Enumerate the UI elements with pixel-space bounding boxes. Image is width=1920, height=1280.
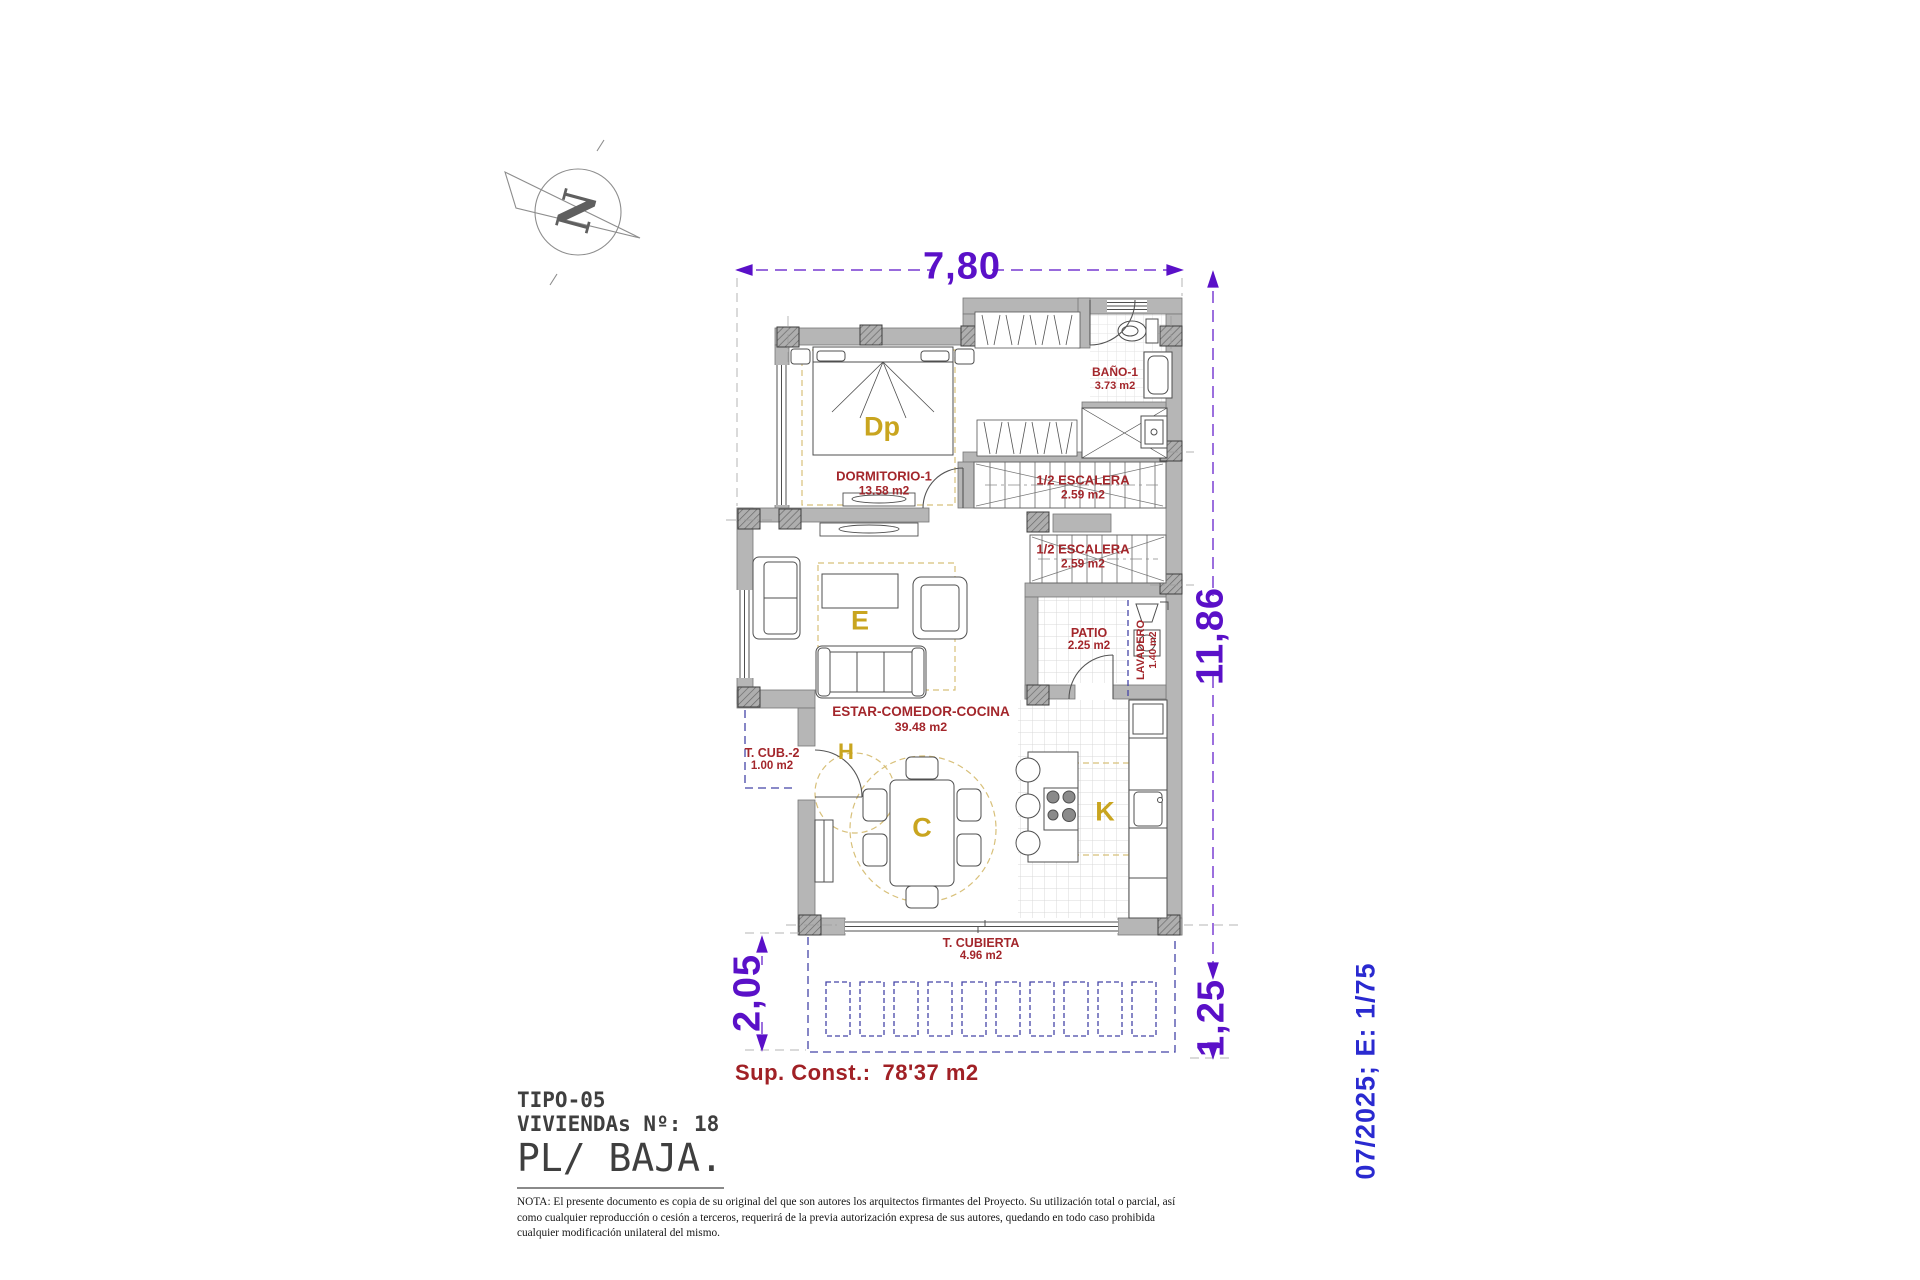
title-floor: PL/ BAJA.: [517, 1136, 723, 1180]
room-name: ESTAR-COMEDOR-COCINA: [832, 704, 1010, 720]
room-area: 2.59 m2: [1036, 489, 1129, 503]
dimension-porch-left: 2,05: [727, 954, 770, 1032]
room-label-banyo1: BAÑO-1 3.73 m2: [1092, 366, 1138, 393]
room-area: 4.96 m2: [943, 951, 1020, 964]
room-name: DORMITORIO-1: [836, 470, 932, 485]
date-scale-note: 07/2025; E: 1/75: [1351, 962, 1382, 1179]
summary-label: Sup. Const.:: [735, 1060, 871, 1085]
title-dwellings: VIVIENDAs Nº: 18: [517, 1112, 719, 1136]
legal-note-line: cualquier modificación unilateral del mi…: [517, 1226, 1175, 1242]
room-area: 1.40 m2: [1148, 620, 1160, 680]
zone-letter-dp: Dp: [864, 412, 900, 443]
zone-letter-k: K: [1095, 797, 1115, 828]
room-name: T. CUBIERTA: [943, 936, 1020, 950]
room-name: T. CUB.-2: [745, 746, 800, 760]
zone-letter-c: C: [912, 813, 932, 844]
room-name: 1/2 ESCALERA: [1036, 543, 1129, 558]
room-area: 13.58 m2: [836, 485, 932, 499]
room-label-lavadero: LAVADERO 1.40 m2: [1135, 620, 1159, 680]
floorplan-sheet: N 7,80 11,86 2,05 1,25 BAÑO-1 3.73 m2 DO…: [0, 0, 1920, 1280]
room-label-patio: PATIO 2.25 m2: [1068, 626, 1110, 654]
built-area-summary: Sup. Const.:78'37 m2: [735, 1060, 979, 1086]
floor-plan-drawing: [0, 0, 1920, 1280]
dimension-top-width: 7,80: [923, 246, 1001, 289]
room-label-dormitorio1: DORMITORIO-1 13.58 m2: [836, 470, 932, 499]
room-label-tcub2: T. CUB.-2 1.00 m2: [745, 746, 800, 774]
room-name: BAÑO-1: [1092, 366, 1138, 380]
room-area: 2.59 m2: [1036, 558, 1129, 572]
room-area: 3.73 m2: [1092, 380, 1138, 393]
legal-note: NOTA: El presente documento es copia de …: [517, 1195, 1175, 1242]
room-name: PATIO: [1068, 626, 1110, 640]
room-area: 39.48 m2: [832, 720, 1010, 734]
room-name: 1/2 ESCALERA: [1036, 474, 1129, 489]
title-divider: [517, 1187, 724, 1189]
room-area: 1.00 m2: [745, 761, 800, 774]
zone-letter-e: E: [851, 606, 869, 637]
room-label-estar: ESTAR-COMEDOR-COCINA 39.48 m2: [832, 704, 1010, 734]
room-label-tcubierta: T. CUBIERTA 4.96 m2: [943, 936, 1020, 964]
zone-letter-h: H: [838, 739, 854, 765]
wardrobes: [975, 312, 1080, 456]
room-label-escalera-lower: 1/2 ESCALERA 2.59 m2: [1036, 543, 1129, 572]
title-type: TIPO-05: [517, 1088, 606, 1112]
legal-note-line: NOTA: El presente documento es copia de …: [517, 1195, 1175, 1211]
room-area: 2.25 m2: [1068, 641, 1110, 654]
room-name: LAVADERO: [1135, 620, 1148, 680]
dimension-right-height: 11,86: [1190, 587, 1233, 685]
dimension-porch-right: 1,25: [1191, 979, 1234, 1057]
legal-note-line: como cualquier reproducción o cesión a t…: [517, 1211, 1175, 1227]
summary-value: 78'37 m2: [883, 1060, 979, 1085]
room-label-escalera-upper: 1/2 ESCALERA 2.59 m2: [1036, 474, 1129, 503]
